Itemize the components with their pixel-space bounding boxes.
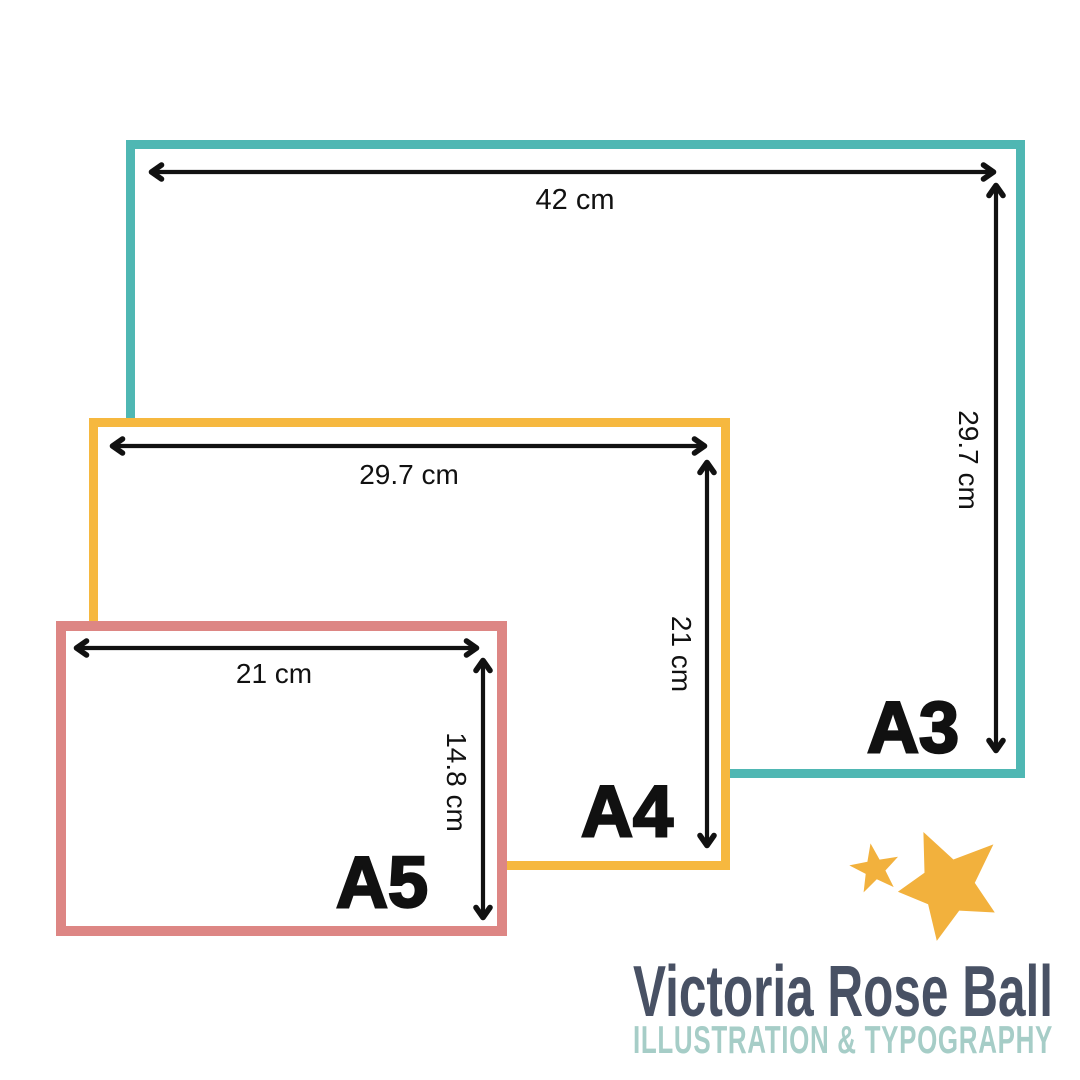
- svg-text:42 cm: 42 cm: [536, 184, 615, 216]
- svg-text:A4: A4: [581, 772, 673, 852]
- svg-text:21 cm: 21 cm: [236, 658, 312, 689]
- svg-text:29.7 cm: 29.7 cm: [359, 459, 459, 490]
- svg-text:29.7 cm: 29.7 cm: [953, 410, 984, 510]
- svg-text:A5: A5: [336, 843, 428, 923]
- svg-text:21 cm: 21 cm: [666, 616, 697, 692]
- svg-text:14.8 cm: 14.8 cm: [441, 732, 472, 832]
- svg-text:ILLUSTRATION & TYPOGRAPHY: ILLUSTRATION & TYPOGRAPHY: [633, 1019, 1053, 1062]
- svg-text:A3: A3: [867, 688, 959, 768]
